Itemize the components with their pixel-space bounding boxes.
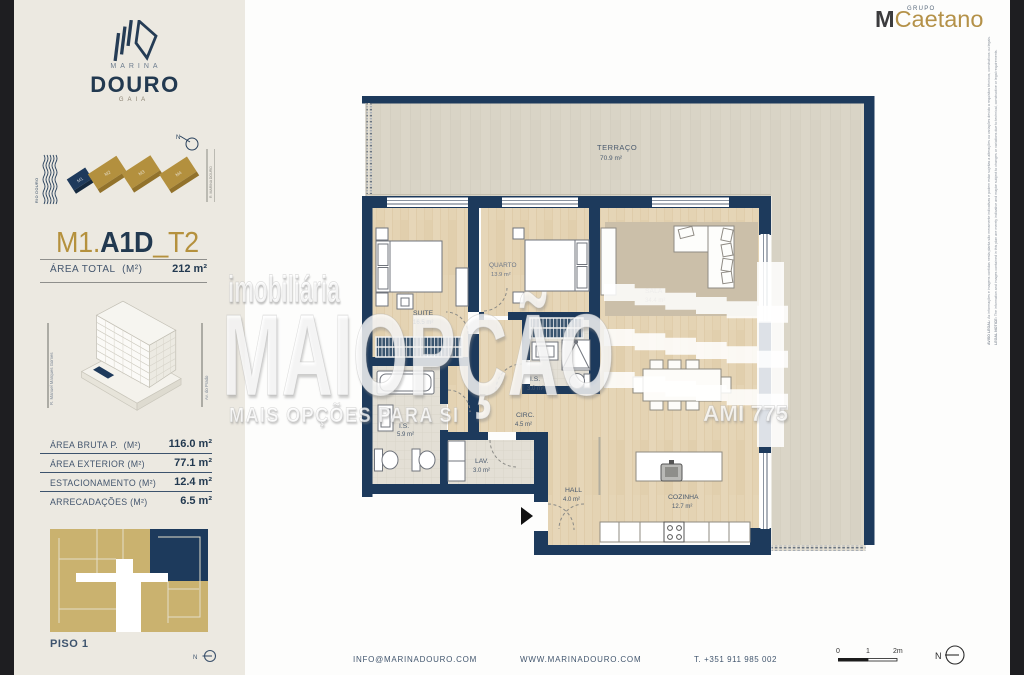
svg-text:70.9 m²: 70.9 m² — [600, 155, 623, 162]
svg-text:4.0 m²: 4.0 m² — [563, 497, 580, 503]
svg-text:5.9 m²: 5.9 m² — [397, 432, 414, 438]
svg-text:2m: 2m — [893, 648, 903, 655]
svg-text:TERRAÇO: TERRAÇO — [597, 143, 637, 152]
svg-text:LAV.: LAV. — [475, 458, 489, 465]
svg-text:3.0 m²: 3.0 m² — [473, 468, 490, 474]
svg-text:13.9 m²: 13.9 m² — [491, 272, 511, 278]
svg-text:N: N — [935, 651, 942, 661]
svg-text:Av. do Prado: Av. do Prado — [204, 375, 209, 400]
svg-text:COZINHA: COZINHA — [668, 494, 699, 501]
svg-text:RIO DOURO: RIO DOURO — [35, 177, 39, 203]
svg-text:R. MARINA DOURO: R. MARINA DOURO — [209, 166, 213, 198]
svg-text:12.7 m²: 12.7 m² — [672, 504, 692, 510]
svg-text:N: N — [176, 135, 180, 141]
svg-text:1: 1 — [866, 648, 870, 655]
svg-text:0: 0 — [836, 648, 840, 655]
svg-text:N: N — [193, 655, 197, 661]
svg-text:R. Manuel Marques Gomes: R. Manuel Marques Gomes — [49, 352, 54, 405]
svg-text:HALL: HALL — [565, 487, 582, 494]
svg-text:QUARTO: QUARTO — [489, 262, 517, 269]
svg-text:4.5 m²: 4.5 m² — [515, 422, 532, 428]
